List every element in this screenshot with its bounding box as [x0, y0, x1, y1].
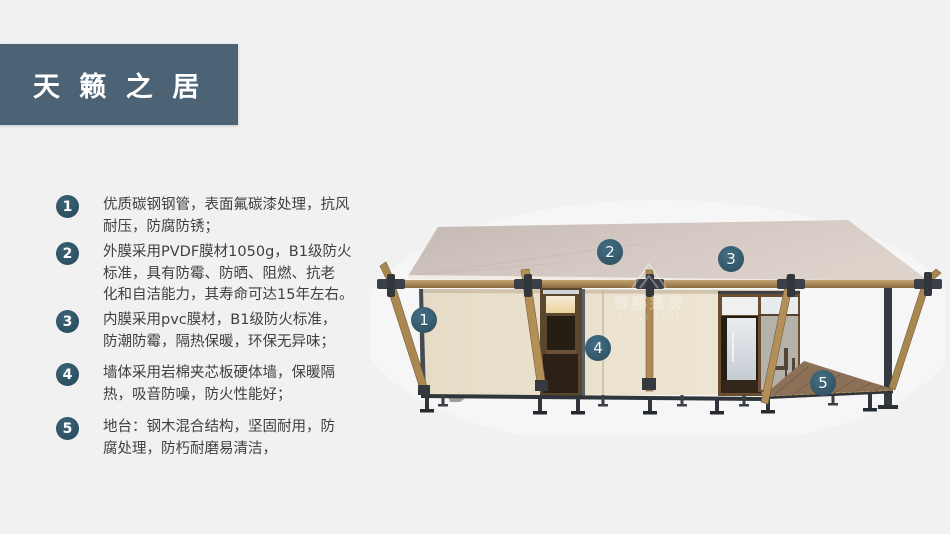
callout-5: 5 [810, 370, 836, 396]
door-handle [732, 332, 734, 362]
door-transom-window [546, 296, 575, 313]
pole-foot-joint [418, 385, 430, 395]
callout-2: 2 [597, 239, 623, 265]
feature-text: 内膜采用pvc膜材，B1级防火标准， 防潮防霉，隔热保暖，环保无异味； [103, 310, 371, 353]
door-upper-panel [547, 316, 575, 350]
feature-text: 优质碳钢钢管，表面氟碳漆处理，抗风 耐压，防腐防锈； [103, 195, 371, 238]
feature-item-4: 4 墙体采用岩棉夹芯板硬体墙，保暖隔 热，吸音防噪，防火性能好； [56, 363, 371, 406]
page-title: 天 籁 之 居 [33, 65, 204, 104]
feature-item-5: 5 地台：钢木混合结构，坚固耐用，防 腐处理，防朽耐磨易清洁， [56, 417, 371, 460]
callout-1: 1 [411, 307, 437, 333]
feature-number-badge: 4 [56, 363, 79, 386]
pole-foot-joint [535, 380, 548, 391]
feature-text: 墙体采用岩棉夹芯板硬体墙，保暖隔 热，吸音防噪，防火性能好； [103, 363, 371, 406]
pole-foot-joint [642, 378, 656, 390]
feature-number-badge: 1 [56, 195, 79, 218]
callout-4: 4 [585, 335, 611, 361]
entry-door [540, 288, 585, 396]
slide: 天 籁 之 居 1 优质碳钢钢管，表面氟碳漆处理，抗风 耐压，防腐防锈； 2 外… [0, 0, 950, 534]
feature-item-3: 3 内膜采用pvc膜材，B1级防火标准， 防潮防霉，隔热保暖，环保无异味； [56, 310, 371, 353]
door-side-steel [582, 289, 585, 396]
watermark-en: XUELI TENT [618, 313, 682, 322]
tent-render: 雪郦篷房 XUELI TENT 1 2 3 4 5 [370, 200, 945, 435]
roof-canopy [408, 220, 930, 285]
feature-item-1: 1 优质碳钢钢管，表面氟碳漆处理，抗风 耐压，防腐防锈； [56, 195, 371, 238]
tent-illustration: 雪郦篷房 XUELI TENT [370, 200, 945, 435]
watermark-cn: 雪郦篷房 [614, 294, 686, 312]
callout-3: 3 [718, 246, 744, 272]
door-top-track [543, 290, 579, 294]
feature-number-badge: 3 [56, 310, 79, 333]
glass-transom [722, 297, 758, 315]
feature-item-2: 2 外膜采用PVDF膜材1050g，B1级防火 标准，具有防霉、防晒、阻燃、抗老… [56, 242, 371, 307]
feature-number-badge: 5 [56, 417, 79, 440]
feature-text: 外膜采用PVDF膜材1050g，B1级防火 标准，具有防霉、防晒、阻燃、抗老 化… [103, 242, 371, 307]
feature-text: 地台：钢木混合结构，坚固耐用，防 腐处理，防朽耐磨易清洁， [103, 417, 371, 460]
feature-number-badge: 2 [56, 242, 79, 265]
white-door [727, 318, 756, 380]
title-banner: 天 籁 之 居 [0, 44, 238, 125]
door-lower-panel [543, 354, 578, 393]
